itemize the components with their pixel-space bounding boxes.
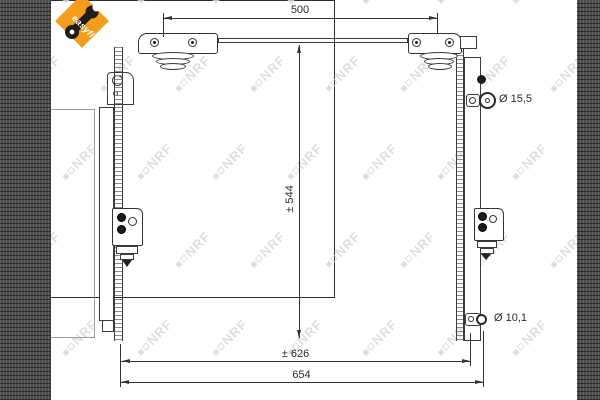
dimension-line-500 (163, 18, 438, 19)
bracket-hole (117, 213, 126, 222)
receiver-drier-cap (102, 320, 114, 332)
bracket-hole-center (153, 41, 156, 44)
dimension-line-544 (299, 45, 300, 338)
drier-connector-tip (122, 260, 132, 267)
arrowhead (297, 45, 301, 53)
watermark-tile: NRF (321, 52, 363, 94)
fitting-lower-label: Ø 10,1 (494, 312, 527, 324)
top-pipe (218, 38, 408, 43)
extension-line (483, 331, 484, 387)
extension-line (437, 13, 438, 34)
watermark-tile: NRF (396, 228, 438, 270)
bracket-hole (478, 223, 487, 232)
watermark-tile: NRF (508, 0, 550, 7)
technical-drawing-page: NRFNRFNRFNRFNRFNRFNRFNRFNRFNRFNRFNRFNRFN… (0, 0, 600, 400)
watermark-tile: NRF (433, 0, 475, 7)
watermark-tile: NRF (358, 140, 400, 182)
dimension-label-654: 654 (120, 369, 483, 381)
bracket-hole (478, 212, 487, 221)
watermark-tile: NRF (208, 140, 250, 182)
dimension-label-626: ± 626 (121, 348, 470, 360)
core-fins-left (0, 0, 51, 400)
bracket-hole-center (448, 41, 451, 44)
bracket-tab (460, 36, 477, 49)
rubber-mount (160, 63, 186, 70)
fitting-upper-hole (469, 97, 476, 104)
arrowhead (297, 330, 301, 338)
fitting-upper-label: Ø 15,5 (499, 93, 532, 105)
arrowhead (164, 16, 172, 20)
watermark-tile: NRF (246, 228, 288, 270)
watermark-tile: NRF (508, 140, 550, 182)
watermark-tile: NRF (171, 228, 213, 270)
watermark-tile: NRF (246, 52, 288, 94)
watermark-tile: NRF (321, 228, 363, 270)
bracket-hole (489, 215, 497, 223)
bracket-foot (116, 246, 138, 254)
core-fins-right (577, 0, 600, 400)
fitting-upper-port-center (485, 98, 490, 103)
bracket-foot (477, 241, 497, 248)
fitting-lower-port (476, 314, 487, 325)
watermark-tile: NRF (133, 140, 175, 182)
arrowhead (429, 16, 437, 20)
bracket-hole (128, 217, 137, 226)
dimension-line-654 (120, 382, 484, 383)
fitting-lower-hole (468, 316, 474, 322)
left-header (114, 47, 123, 341)
right-header (456, 47, 464, 341)
rubber-mount (428, 63, 452, 70)
bracket-hole (117, 225, 126, 234)
bracket-hole-center (415, 41, 418, 44)
valve-tip (481, 254, 491, 260)
dimension-line-626 (121, 361, 471, 362)
dimension-label-544: ± 544 (284, 169, 296, 229)
dimension-label-500: 500 (163, 4, 437, 16)
tank-port (477, 75, 486, 84)
side-profile-view (46, 109, 95, 338)
bracket-hole-center (191, 41, 194, 44)
